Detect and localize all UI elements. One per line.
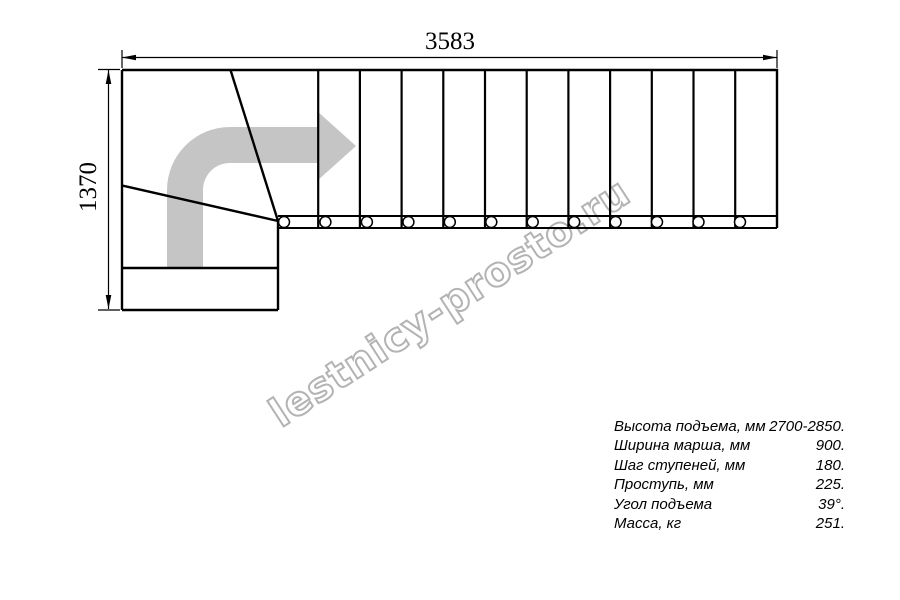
spec-label: Угол подъема [614,495,712,514]
baluster-circle [652,217,663,228]
spec-value: 180. [816,456,845,475]
specs-table: Высота подъема, мм2700-2850.Ширина марша… [614,417,845,533]
baluster-circles [279,217,746,228]
dim-arrow-right [763,55,777,61]
spec-row: Проступь, мм225. [614,475,845,494]
dimension-top: 3583 [122,28,777,68]
staircase-drawing-canvas: lestnicy-prosto.ru 3583 [0,0,900,600]
spec-value: 900. [816,436,845,455]
spec-row: Угол подъема39°. [614,495,845,514]
spec-value: 251. [816,514,845,533]
dimension-left: 1370 [75,70,120,311]
dim-arrow-left [122,55,136,61]
spec-value: 2700-2850. [769,417,845,436]
baluster-circle [735,217,746,228]
dimension-depth-label: 1370 [75,162,102,212]
step-lines [318,70,735,228]
spec-label: Ширина марша, мм [614,436,750,455]
baluster-circle [444,217,455,228]
spec-label: Масса, кг [614,514,681,533]
travel-direction-arrow [167,111,356,268]
spec-row: Масса, кг251. [614,514,845,533]
baluster-circle [527,217,538,228]
dim-arrow-up [106,70,112,84]
spec-value: 225. [816,475,845,494]
spec-label: Проступь, мм [614,475,714,494]
spec-label: Высота подъема, мм [614,417,766,436]
spec-row: Шаг ступеней, мм180. [614,456,845,475]
dimension-length-label: 3583 [425,28,475,55]
spec-value: 39°. [818,495,845,514]
baluster-circle [569,217,580,228]
spec-label: Шаг ступеней, мм [614,456,745,475]
baluster-circle [610,217,621,228]
baluster-circle [279,217,290,228]
spec-row: Высота подъема, мм2700-2850. [614,417,845,436]
baluster-circle [320,217,331,228]
spec-row: Ширина марша, мм900. [614,436,845,455]
baluster-circle [361,217,372,228]
baluster-circle [486,217,497,228]
baluster-circle [693,217,704,228]
dim-arrow-down [106,295,112,309]
baluster-circle [403,217,414,228]
